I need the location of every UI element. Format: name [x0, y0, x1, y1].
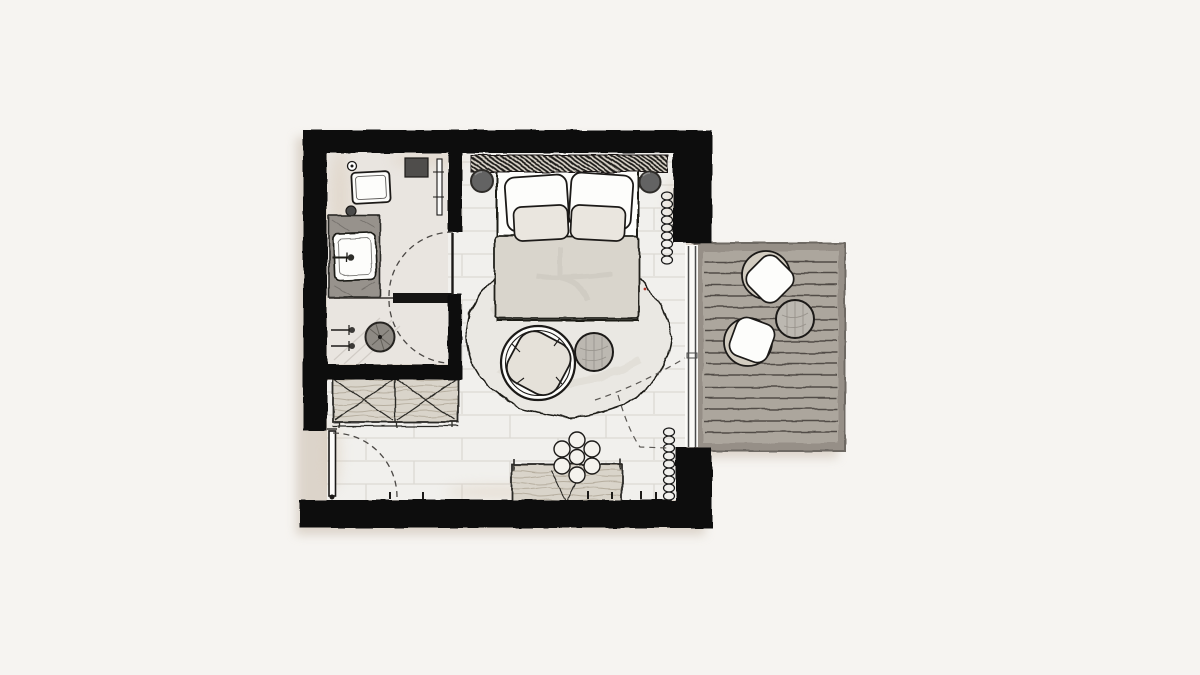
- floor-plan-canvas: [0, 0, 1200, 675]
- double-bed: [495, 166, 639, 320]
- right-wall-upper: [673, 130, 712, 243]
- side-table: [575, 333, 613, 371]
- towel-rail: [393, 293, 453, 303]
- wardrobe: [333, 378, 458, 428]
- bathroom-bottom-wall: [327, 364, 462, 380]
- pillow-front-left: [513, 205, 569, 242]
- nightstand-right: [640, 172, 661, 193]
- bottom-wall: [300, 500, 712, 528]
- headboard: [472, 155, 668, 172]
- wall-cabinet: [405, 158, 428, 177]
- floor-plan: [0, 0, 1200, 675]
- flush-button: [348, 162, 357, 171]
- entry-door-leaf: [329, 431, 336, 496]
- balcony-table: [776, 300, 814, 338]
- toilet: [351, 171, 391, 204]
- nightstand-left: [471, 170, 493, 192]
- right-wall-lower: [676, 448, 712, 510]
- top-wall: [303, 130, 712, 153]
- left-wall: [303, 130, 327, 430]
- vanity-sink: [329, 215, 380, 297]
- shower-head: [366, 323, 395, 352]
- bathroom-partition-upper: [448, 152, 462, 232]
- pillow-front-right: [570, 205, 626, 242]
- duvet: [495, 236, 639, 318]
- sketch-dot-2: [644, 288, 647, 291]
